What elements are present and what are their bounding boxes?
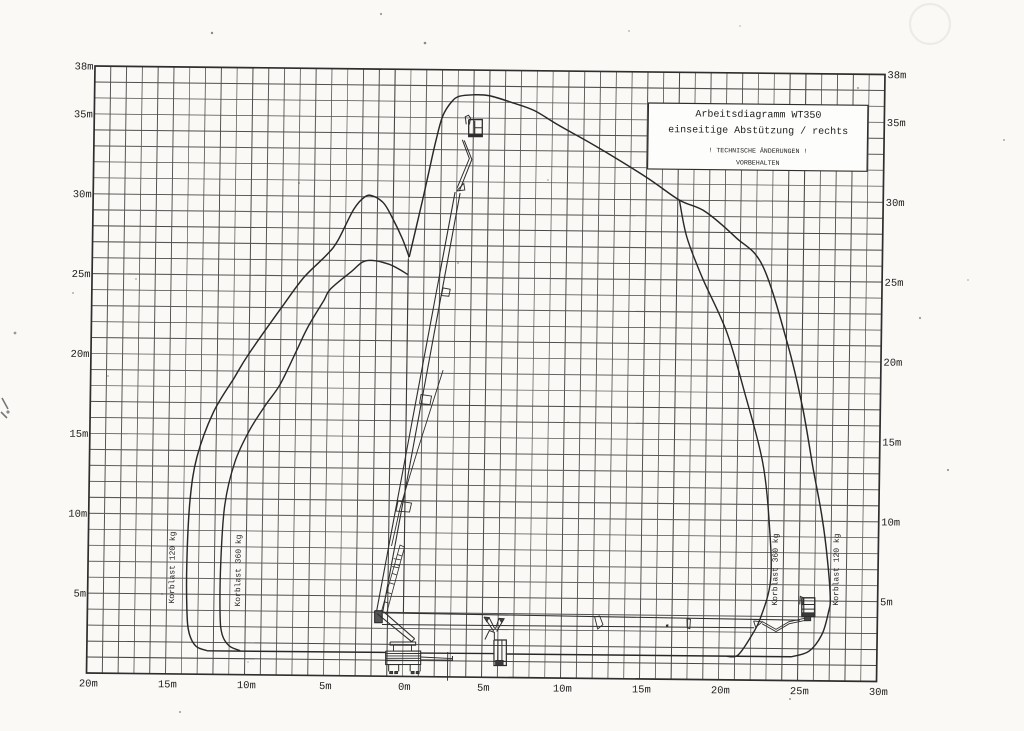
svg-text:! TECHNISCHE ÄNDERUNGEN !: ! TECHNISCHE ÄNDERUNGEN ! — [708, 146, 807, 155]
svg-text:Korblast 120 kg: Korblast 120 kg — [832, 533, 842, 605]
svg-text:15m: 15m — [882, 438, 901, 450]
svg-text:5m: 5m — [73, 589, 86, 601]
svg-text:10m: 10m — [553, 684, 572, 696]
svg-text:10m: 10m — [881, 517, 900, 529]
svg-text:0m: 0m — [398, 682, 411, 694]
svg-text:20m: 20m — [883, 358, 902, 370]
svg-text:15m: 15m — [632, 684, 651, 696]
svg-text:30m: 30m — [886, 198, 905, 210]
svg-text:5m: 5m — [477, 683, 490, 695]
svg-text:20m: 20m — [711, 685, 730, 697]
svg-text:30m: 30m — [73, 189, 92, 201]
svg-text:5m: 5m — [880, 597, 893, 609]
svg-text:25m: 25m — [72, 269, 91, 281]
svg-text:38m: 38m — [887, 70, 906, 82]
svg-text:VORBEHALTEN: VORBEHALTEN — [736, 159, 780, 166]
svg-text:Korblast 360 kg: Korblast 360 kg — [771, 533, 781, 605]
svg-text:38m: 38m — [74, 61, 93, 73]
svg-text:Korblast 120 kg: Korblast 120 kg — [168, 531, 178, 603]
svg-text:25m: 25m — [884, 278, 903, 290]
svg-text:einseitige Abstützung / rechts: einseitige Abstützung / rechts — [668, 124, 848, 138]
svg-text:20m: 20m — [70, 349, 89, 361]
svg-text:10m: 10m — [68, 509, 87, 521]
svg-text:35m: 35m — [887, 118, 906, 130]
svg-text:10m: 10m — [237, 680, 256, 692]
svg-text:15m: 15m — [158, 679, 177, 691]
svg-text:15m: 15m — [69, 429, 88, 441]
svg-text:30m: 30m — [869, 687, 888, 699]
svg-text:25m: 25m — [790, 686, 809, 698]
svg-text:35m: 35m — [74, 109, 93, 121]
svg-text:Korblast 360 kg: Korblast 360 kg — [234, 534, 244, 606]
svg-text:Arbeitsdiagramm WT350: Arbeitsdiagramm WT350 — [695, 108, 821, 121]
svg-text:5m: 5m — [319, 681, 332, 693]
svg-text:20m: 20m — [79, 678, 98, 690]
